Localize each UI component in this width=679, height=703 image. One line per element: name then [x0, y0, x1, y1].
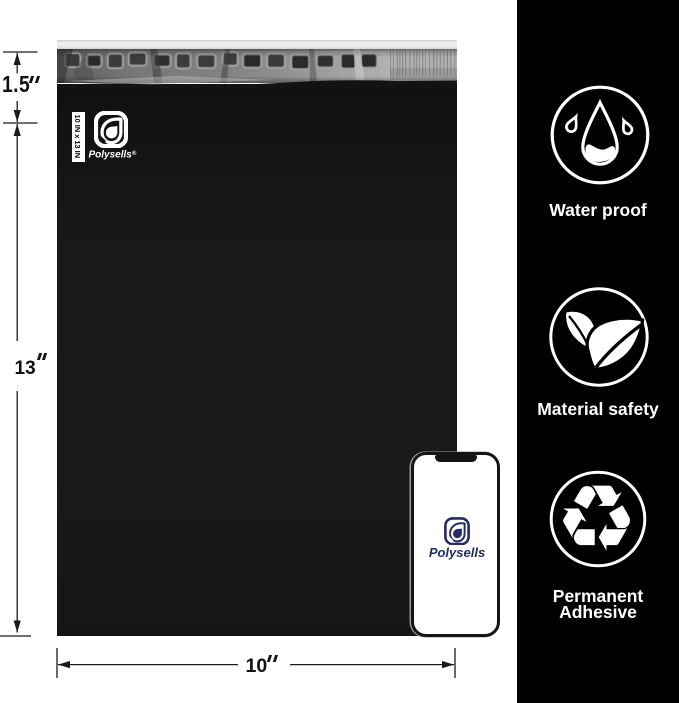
svg-text:10 IN x 13 IN: 10 IN x 13 IN — [73, 115, 82, 159]
